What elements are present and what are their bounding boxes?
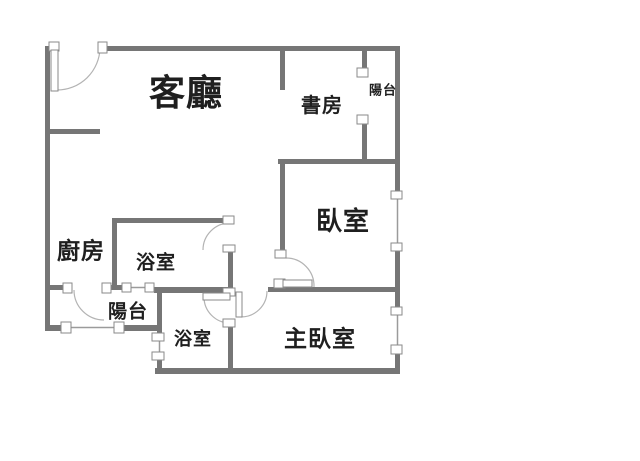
room-label-kitchen: 廚房 xyxy=(57,241,105,264)
room-label-balcony-top: 陽台 xyxy=(369,85,397,98)
wall-right-wall-bottom xyxy=(395,352,400,374)
kitchen-door-left-jamb xyxy=(63,283,72,293)
top-balcony-jamb-lower xyxy=(357,115,368,124)
bedroom-door-top-jamb xyxy=(275,250,286,258)
bath1-window-right-cap xyxy=(145,283,154,292)
entry-door-leaf xyxy=(51,50,58,91)
wall-study-balcony-divider-upper xyxy=(362,46,367,71)
master-door-arc xyxy=(241,291,267,317)
wall-living-study-divider xyxy=(280,46,285,90)
wall-left-wall xyxy=(45,46,50,331)
right-wall-jamb-3 xyxy=(391,307,402,315)
balcony-window-left-cap xyxy=(61,322,71,333)
wall-bedroom-left-wall xyxy=(280,162,285,252)
top-balcony-jamb-upper xyxy=(357,68,368,77)
wall-study-bottom-wall xyxy=(278,159,400,164)
bath1-door-bottom-jamb xyxy=(223,245,235,252)
room-label-study: 書房 xyxy=(301,95,343,115)
wall-balcony-bottom-right-wall xyxy=(123,325,161,331)
wall-master-top-wall xyxy=(268,287,400,292)
wall-bath2-top-wall xyxy=(154,287,233,293)
balcony-window-right-cap xyxy=(114,322,124,333)
wall-bath2-left-wall-lower xyxy=(157,359,162,374)
master-door-leaf xyxy=(236,292,242,317)
room-label-bathroom-top: 浴室 xyxy=(136,254,176,273)
wall-right-wall-mid xyxy=(395,250,400,310)
room-label-bathroom-bottom: 浴室 xyxy=(174,331,212,349)
kitchen-door-arc xyxy=(74,290,104,320)
kitchen-door-right-jamb xyxy=(102,283,111,293)
room-label-balcony-bottom: 陽台 xyxy=(108,303,148,322)
bath2-window-top-cap xyxy=(152,333,164,341)
bath1-window-left-cap xyxy=(122,283,131,292)
bedroom-door-leaf xyxy=(283,280,312,287)
room-label-living-room: 客廳 xyxy=(149,76,223,112)
entry-door-arc xyxy=(57,48,100,90)
bath2-window-bottom-cap xyxy=(152,352,164,360)
right-wall-jamb-4 xyxy=(391,345,402,354)
bath2-door-leaf xyxy=(203,293,230,300)
entry-door-jamb xyxy=(98,42,107,53)
floor-plan: 客廳書房陽台臥室廚房浴室陽台浴室主臥室 xyxy=(0,0,640,461)
wall-bath2-master-divider xyxy=(228,325,233,374)
wall-right-wall-top xyxy=(395,46,400,193)
wall-bath1-top-wall xyxy=(112,218,224,223)
wall-top-wall xyxy=(103,46,400,51)
right-wall-jamb-2 xyxy=(391,243,402,251)
wall-study-balcony-divider-lower xyxy=(362,122,367,164)
wall-bottom-wall xyxy=(155,368,400,374)
bath2-door-bottom-jamb xyxy=(223,319,235,327)
room-label-master-bedroom: 主臥室 xyxy=(284,329,356,352)
wall-kitchen-stub-wall xyxy=(45,129,100,134)
right-wall-jamb-1 xyxy=(391,191,402,199)
bath1-door-top-jamb xyxy=(223,216,234,224)
wall-kitchen-bath-divider xyxy=(112,218,117,290)
room-label-bedroom: 臥室 xyxy=(316,209,370,235)
wall-bath2-left-wall-upper xyxy=(157,290,162,336)
